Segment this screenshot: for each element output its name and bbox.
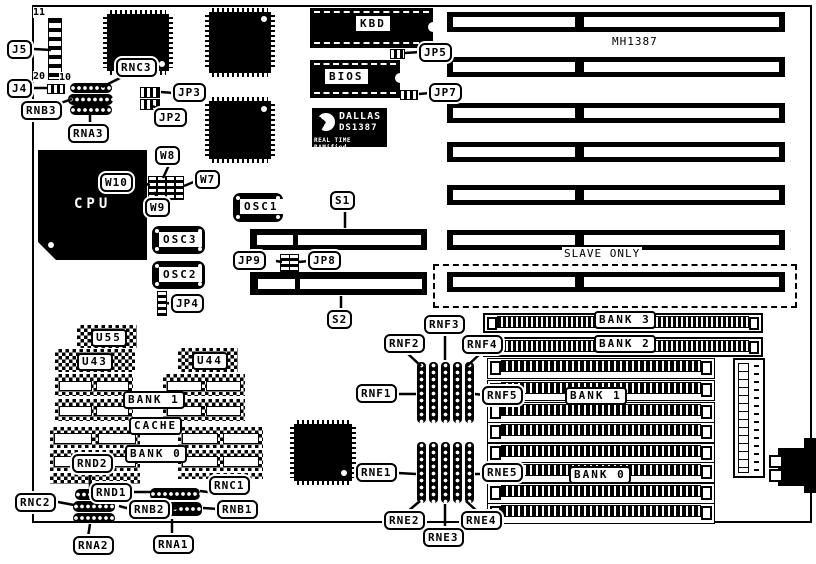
callout-rnd1: RND1 — [91, 483, 132, 502]
callout-j5: J5 — [7, 40, 32, 59]
cache-bank1-label: BANK 1 — [123, 391, 185, 409]
motherboard-diagram: MH1387 SLAVE ONLY 11 20 10 CPU KBD BIOS — [0, 0, 816, 564]
osc1-label: OSC1 — [240, 199, 283, 214]
bank3-label: BANK 3 — [594, 311, 656, 329]
callout-rnf5: RNF5 — [482, 386, 523, 405]
callout-rne1: RNE1 — [356, 463, 397, 482]
mem-bank0-label: BANK 0 — [569, 466, 631, 484]
bios-label: BIOS — [325, 69, 368, 84]
callout-rne3: RNE3 — [423, 528, 464, 547]
callout-w8: W8 — [155, 146, 180, 165]
kbd-label: KBD — [356, 16, 390, 31]
callout-pointers — [0, 0, 816, 564]
pin-number-10: 10 — [59, 72, 71, 83]
cache-label: CACHE — [129, 417, 182, 435]
callout-rnb2: RNB2 — [129, 500, 170, 519]
callout-rne5: RNE5 — [482, 463, 523, 482]
callout-rnc1: RNC1 — [209, 476, 250, 495]
callout-s2: S2 — [327, 310, 352, 329]
callout-rne2: RNE2 — [384, 511, 425, 530]
callout-rnc2: RNC2 — [15, 493, 56, 512]
callout-j4: J4 — [7, 79, 32, 98]
bank2-label: BANK 2 — [594, 335, 656, 353]
callout-jp8: JP8 — [308, 251, 341, 270]
callout-rnf3: RNF3 — [424, 315, 465, 334]
callout-w7: W7 — [195, 170, 220, 189]
osc3-label: OSC3 — [159, 232, 202, 247]
pin-number-11: 11 — [33, 7, 45, 18]
u55-label: U55 — [91, 329, 127, 347]
callout-rnb1: RNB1 — [217, 500, 258, 519]
callout-rnf4: RNF4 — [462, 335, 503, 354]
callout-rna2: RNA2 — [73, 536, 114, 555]
u43-label: U43 — [77, 353, 113, 371]
callout-rnd2: RND2 — [72, 454, 113, 473]
callout-jp4: JP4 — [171, 294, 204, 313]
callout-w9: W9 — [145, 198, 170, 217]
callout-rnf2: RNF2 — [384, 334, 425, 353]
callout-jp5: JP5 — [419, 43, 452, 62]
callout-rnc3: RNC3 — [116, 58, 157, 77]
callout-s1: S1 — [330, 191, 355, 210]
callout-jp3: JP3 — [173, 83, 206, 102]
pin-number-20: 20 — [33, 71, 45, 82]
u44-label: U44 — [192, 352, 228, 370]
callout-rna3: RNA3 — [68, 124, 109, 143]
mem-bank1-label: BANK 1 — [565, 387, 627, 405]
callout-rnb3: RNB3 — [21, 101, 62, 120]
slave-only-text: SLAVE ONLY — [562, 247, 642, 260]
cache-bank0-label: BANK 0 — [125, 445, 187, 463]
osc2-label: OSC2 — [159, 267, 202, 282]
callout-rnf1: RNF1 — [356, 384, 397, 403]
board-model-text: MH1387 — [610, 35, 660, 48]
callout-jp7: JP7 — [429, 83, 462, 102]
callout-jp2: JP2 — [154, 108, 187, 127]
callout-w10: W10 — [100, 173, 133, 192]
cpu-label: CPU — [74, 196, 111, 212]
callout-jp9: JP9 — [233, 251, 266, 270]
callout-rne4: RNE4 — [461, 511, 502, 530]
callout-rna1: RNA1 — [153, 535, 194, 554]
